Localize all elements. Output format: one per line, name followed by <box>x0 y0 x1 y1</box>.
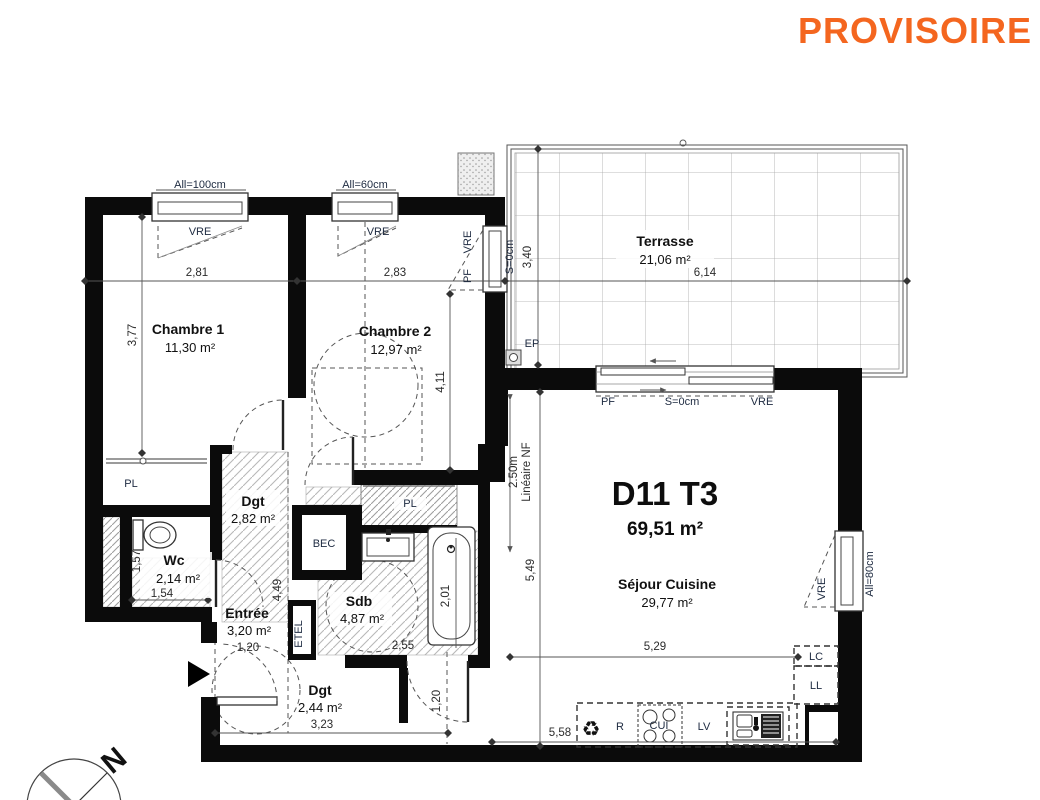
floor-plan-page: PROVISOIRE D11 T3 69,51 m² Chambre 1 11,… <box>0 0 1040 800</box>
label-bec: BEC <box>313 538 336 550</box>
label-vre-4: VRE <box>751 396 774 408</box>
closet-chambre1 <box>106 458 207 464</box>
north-letter: N <box>95 741 133 780</box>
dim-entree-width: 1,20 <box>237 642 259 654</box>
label-r: R <box>616 721 624 733</box>
dim-terrace-height: 3,40 <box>522 246 534 268</box>
label-vre-1: VRE <box>189 226 212 238</box>
unit-code: D11 T3 <box>612 475 718 512</box>
label-vre-3: VRE <box>462 231 474 254</box>
label-pf-2: PF <box>601 396 615 408</box>
pillar <box>458 153 494 195</box>
label-s0-2: S=0cm <box>665 396 700 408</box>
label-vre-2: VRE <box>367 226 390 238</box>
label-ll: LL <box>810 680 822 692</box>
room-name-chambre2: Chambre 2 <box>359 323 432 339</box>
room-area-sejour: 29,77 m² <box>641 595 693 610</box>
dim-lineaire-length: 2.50m <box>508 456 520 488</box>
dim-kitchen-width: 5,58 <box>549 727 571 739</box>
room-area-wc: 2,14 m² <box>156 571 201 586</box>
window-chambre1 <box>152 190 248 258</box>
room-name-chambre1: Chambre 1 <box>152 321 225 337</box>
room-name-dgt2: Dgt <box>308 682 332 698</box>
unit-area: 69,51 m² <box>627 519 703 540</box>
label-allege-60: All=60cm <box>342 179 388 191</box>
dim-ch1-width: 2,81 <box>186 267 208 279</box>
entrance-arrow <box>188 661 210 687</box>
room-area-terrasse: 21,06 m² <box>639 252 691 267</box>
room-area-chambre1: 11,30 m² <box>165 340 216 355</box>
room-name-terrasse: Terrasse <box>636 233 694 249</box>
kitchen-sink <box>727 707 789 745</box>
label-allege-100: All=100cm <box>174 179 226 191</box>
dim-wc-height: 1,57 <box>131 550 143 572</box>
room-name-dgt1: Dgt <box>241 493 265 509</box>
window-chambre2-east <box>448 226 507 292</box>
floor-plan-svg: PROVISOIRE D11 T3 69,51 m² Chambre 1 11,… <box>0 0 1040 800</box>
label-pl-sdb: PL <box>403 498 416 510</box>
dim-ch2-width: 2,83 <box>384 267 406 279</box>
dim-ch2-height: 4,11 <box>435 371 447 393</box>
toilet <box>133 520 176 550</box>
recycle-icon: ♻ <box>582 718 601 741</box>
dim-bath-length: 2,01 <box>440 585 452 607</box>
label-vre-5: VRE <box>816 578 828 601</box>
label-pf-1: PF <box>462 269 474 283</box>
room-area-sdb: 4,87 m² <box>340 611 385 626</box>
room-area-dgt1: 2,82 m² <box>231 511 276 526</box>
dim-ch1-height: 3,77 <box>127 324 139 346</box>
label-ep: EP <box>525 338 540 350</box>
label-pl-chambre1: PL <box>124 478 137 490</box>
room-name-entree: Entrée <box>225 605 269 621</box>
room-name-sejour: Séjour Cuisine <box>618 576 716 592</box>
room-area-entree: 3,20 m² <box>227 623 272 638</box>
label-s0-terrace: S=0cm <box>504 240 516 275</box>
door-chambre1 <box>233 400 283 450</box>
label-cui: CUI <box>650 720 669 732</box>
ep-drain <box>506 350 521 365</box>
room-name-wc: Wc <box>164 552 185 568</box>
room-name-sdb: Sdb <box>346 593 372 609</box>
sdb-sink <box>362 529 414 561</box>
compass-north: N <box>27 741 133 800</box>
window-sejour-east <box>804 531 863 611</box>
window-terrace-slider <box>596 361 774 396</box>
label-allege-80: All=80cm <box>864 551 876 597</box>
room-area-chambre2: 12,97 m² <box>370 342 422 357</box>
kitchen-counter <box>577 703 797 747</box>
dim-terrace-width: 6,14 <box>694 267 717 279</box>
label-lv: LV <box>698 721 711 733</box>
fridge-niche <box>809 712 838 745</box>
dim-dgt-height: 4,49 <box>272 579 284 601</box>
dim-dgt2-width: 3,23 <box>311 719 333 731</box>
room-area-dgt2: 2,44 m² <box>298 700 343 715</box>
dim-lineaire-nf: Linéaire NF <box>521 442 533 501</box>
label-lc: LC <box>809 651 823 663</box>
label-etel: ETEL <box>293 620 305 648</box>
dim-sejour-height: 5,49 <box>525 559 537 581</box>
dim-door-height: 1,20 <box>431 690 443 712</box>
dim-sdb-width: 2,55 <box>392 640 414 652</box>
watermark-provisoire: PROVISOIRE <box>798 10 1032 51</box>
dim-wc-width: 1,54 <box>151 588 174 600</box>
dim-sejour-width: 5,29 <box>644 641 666 653</box>
